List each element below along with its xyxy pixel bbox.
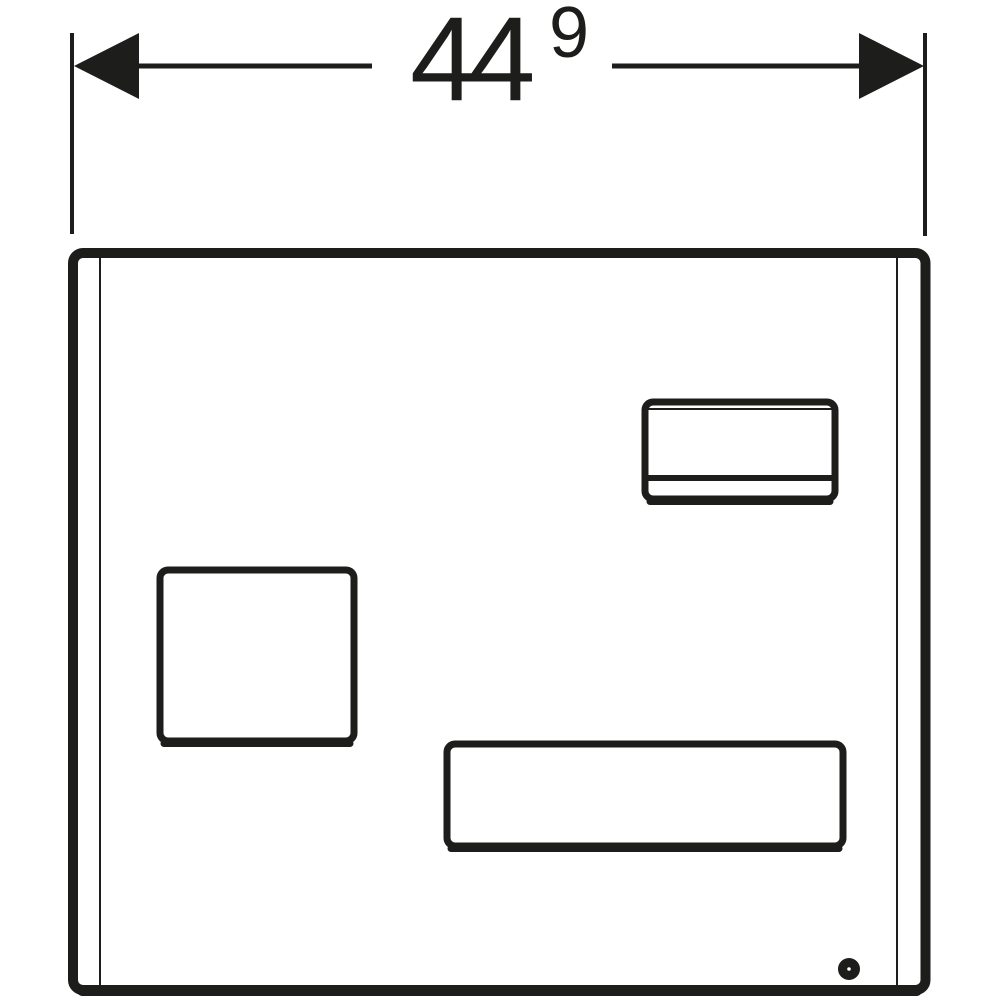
pivot-dot bbox=[838, 958, 860, 980]
arrowhead-right-icon bbox=[859, 33, 924, 99]
dimension-superscript: 9 bbox=[549, 0, 589, 73]
plate-outer-edge bbox=[73, 253, 926, 990]
technical-drawing-canvas: 44 9 bbox=[0, 0, 1000, 1000]
arrowhead-left-icon bbox=[74, 33, 139, 99]
width-dimension: 44 9 bbox=[72, 0, 925, 236]
wide-button-outline bbox=[447, 744, 843, 846]
square-button-outline bbox=[160, 570, 354, 741]
technical-drawing: 44 9 bbox=[0, 0, 1000, 1000]
flush-plate-outline bbox=[73, 253, 926, 992]
square-button bbox=[160, 570, 354, 744]
small-button-outline bbox=[645, 402, 835, 499]
wide-rect-button bbox=[447, 744, 843, 849]
dimension-value: 44 bbox=[410, 0, 533, 126]
pivot-dot-center bbox=[847, 967, 851, 971]
small-rect-button bbox=[645, 402, 835, 502]
